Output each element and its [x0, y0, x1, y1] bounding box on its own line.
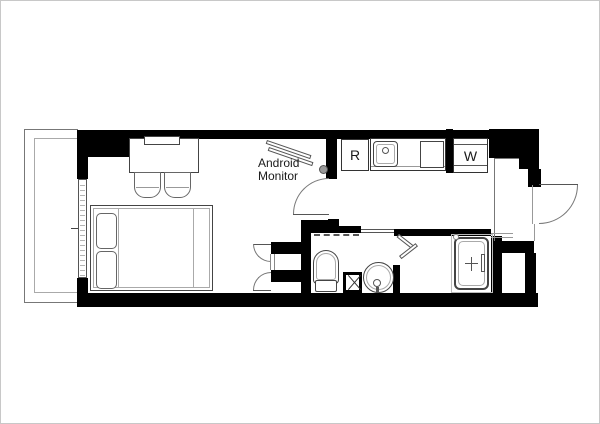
toilet-tank — [315, 280, 337, 292]
desk-monitor — [144, 136, 180, 145]
genkan-step-line — [491, 237, 513, 238]
floor-plan: Android Monitor R W — [0, 0, 600, 424]
faucet-icon — [382, 147, 389, 154]
android-monitor-label-line2: Monitor — [258, 170, 299, 183]
refrigerator-box: R — [341, 139, 369, 171]
window-center-tick — [71, 228, 78, 229]
wall-segment — [271, 242, 303, 254]
door-knob-icon — [319, 165, 328, 174]
bedroom-door-leaf — [293, 214, 329, 215]
closet-front-line — [270, 254, 271, 270]
desk-chair-line — [136, 187, 159, 188]
closet-door-arc — [253, 244, 271, 262]
wall-segment — [326, 139, 337, 179]
washbasin-faucet-icon — [373, 279, 381, 287]
window — [78, 179, 87, 278]
wall-segment — [328, 219, 339, 226]
stove-unit — [420, 141, 444, 168]
bedroom-door-arc — [293, 178, 329, 214]
desk-chair — [134, 172, 161, 198]
pipe-shaft-box — [343, 272, 362, 293]
genkan-divider-line — [494, 158, 495, 241]
desk-chair-line — [166, 187, 189, 188]
desk-chair — [164, 172, 191, 198]
entrance-wall-line — [534, 224, 535, 241]
bed-divider — [193, 208, 194, 288]
washer-label: W — [464, 148, 477, 164]
bed-divider — [118, 208, 119, 288]
balcony-inner — [34, 138, 78, 293]
wall-segment — [525, 253, 536, 293]
pillow — [96, 213, 117, 249]
bathtub-faucet-cross — [471, 257, 472, 271]
washroom-opening-line — [361, 229, 394, 233]
wall-segment — [489, 129, 539, 158]
genkan-top-line — [494, 158, 519, 159]
washer-line — [454, 144, 487, 145]
closet-front-line — [274, 254, 275, 270]
wall-segment — [311, 226, 361, 233]
genkan-step-line — [491, 233, 513, 234]
wall-segment — [393, 265, 400, 293]
washbasin-stem — [376, 287, 379, 293]
closet-door-leaf — [253, 290, 271, 291]
wall-segment — [301, 229, 311, 293]
android-monitor-label: Android Monitor — [258, 157, 299, 183]
closet-door-arc — [253, 272, 271, 290]
bathtub-handle — [481, 254, 485, 272]
refrigerator-label: R — [350, 147, 360, 163]
entrance-threshold-line — [532, 185, 533, 224]
accordion-door — [314, 234, 359, 236]
wall-segment — [519, 158, 539, 169]
bathtub-drain-icon — [453, 234, 459, 240]
wall-segment — [77, 130, 88, 179]
pillow — [96, 251, 117, 289]
wall-segment — [271, 270, 303, 282]
wall-segment — [446, 129, 453, 173]
washer-line — [454, 165, 487, 166]
wall-segment — [77, 293, 538, 307]
front-door-arc — [539, 185, 578, 224]
bathtub-faucet-cross — [465, 263, 478, 264]
toilet-bowl-inner — [316, 253, 336, 280]
